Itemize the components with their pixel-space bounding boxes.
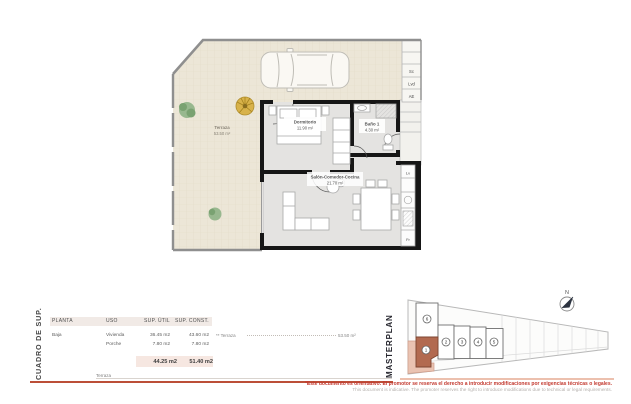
room-label-salon: Salón-Comedor-Cocina 21.70 m² [307,172,363,186]
svg-text:21.70 m²: 21.70 m² [327,181,344,186]
svg-text:1: 1 [425,348,428,353]
masterplan-drawing: 6 1 2 3 4 5 [402,285,614,385]
svg-text:5: 5 [493,340,496,345]
cell-planta: Baja [52,333,62,338]
col-header-planta: PLANTA [52,318,73,324]
cell-sup-const: 7.80 m2 [172,342,209,347]
disclaimer-en: This document is indicative. The promote… [260,387,612,393]
north-arrow-icon: N [556,286,578,314]
svg-text:Baño 1: Baño 1 [365,122,380,127]
dotted-leader [247,334,336,336]
room-label-terraza: Terraza 53.50 m² [214,125,231,136]
surface-table-title: CUADRO DE SUP. [34,296,43,380]
floorplan-sheet: Sc Lvd AE [0,0,631,404]
footer-disclaimer: *Este documento es orientativo. El promo… [260,381,612,393]
wardrobe [333,118,350,164]
porch-area [400,100,421,165]
svg-text:53.50 m²: 53.50 m² [214,131,231,136]
cell-sup-const: 43.60 m2 [172,333,209,338]
total-sup-const: 51.40 m2 [180,359,213,365]
north-label: N [565,290,569,296]
cell-sup-util: 7.80 m2 [137,342,170,347]
label-secadora: Sc [409,69,414,74]
tree-icon [209,208,222,221]
svg-text:4.30 m²: 4.30 m² [365,128,380,133]
row-separator [96,378,392,379]
svg-text:11.90 m²: 11.90 m² [297,126,314,131]
masterplan-underline [400,378,614,380]
total-sup-util: 44.25 m2 [136,359,177,365]
label-frigorifico: Fr [406,237,410,242]
cell-uso: Vivienda [106,333,124,338]
terraza-note-label: ** Terraza [216,333,236,338]
kitchen-counter: Lv Fr [401,165,415,246]
label-lavavajillas: Lv [406,171,410,176]
floor-plan-drawing: Sc Lvd AE [165,22,427,262]
cell-uso: Porche [106,342,121,347]
room-label-bano: Baño 1 4.30 m² [359,119,385,133]
utility-strip: Sc Lvd AE [402,40,421,102]
label-lavadora: Lvd [408,82,415,87]
svg-text:Salón-Comedor-Cocina: Salón-Comedor-Cocina [311,175,360,180]
masterplan-title: MASTERPLAN [385,300,394,378]
palm-tree-icon [236,97,254,115]
label-ae: AE [409,94,415,99]
svg-text:Dormitorio: Dormitorio [294,120,317,125]
svg-text:2: 2 [445,340,448,345]
terraza-note-value: 53.50 m² [338,333,356,338]
car-icon [261,49,349,92]
col-header-sup-util: SUP. ÚTIL [137,318,170,324]
svg-text:6: 6 [426,317,429,322]
col-header-uso: USO [106,318,118,324]
col-header-sup-const: SUP. CONST. [172,318,209,324]
svg-text:3: 3 [461,340,464,345]
room-label-dormitorio: Dormitorio 11.90 m² [284,117,326,131]
svg-text:Terraza: Terraza [214,125,230,130]
next-section-label: Terraza [96,373,111,378]
cell-sup-util: 36.45 m2 [137,333,170,338]
svg-text:4: 4 [477,340,480,345]
